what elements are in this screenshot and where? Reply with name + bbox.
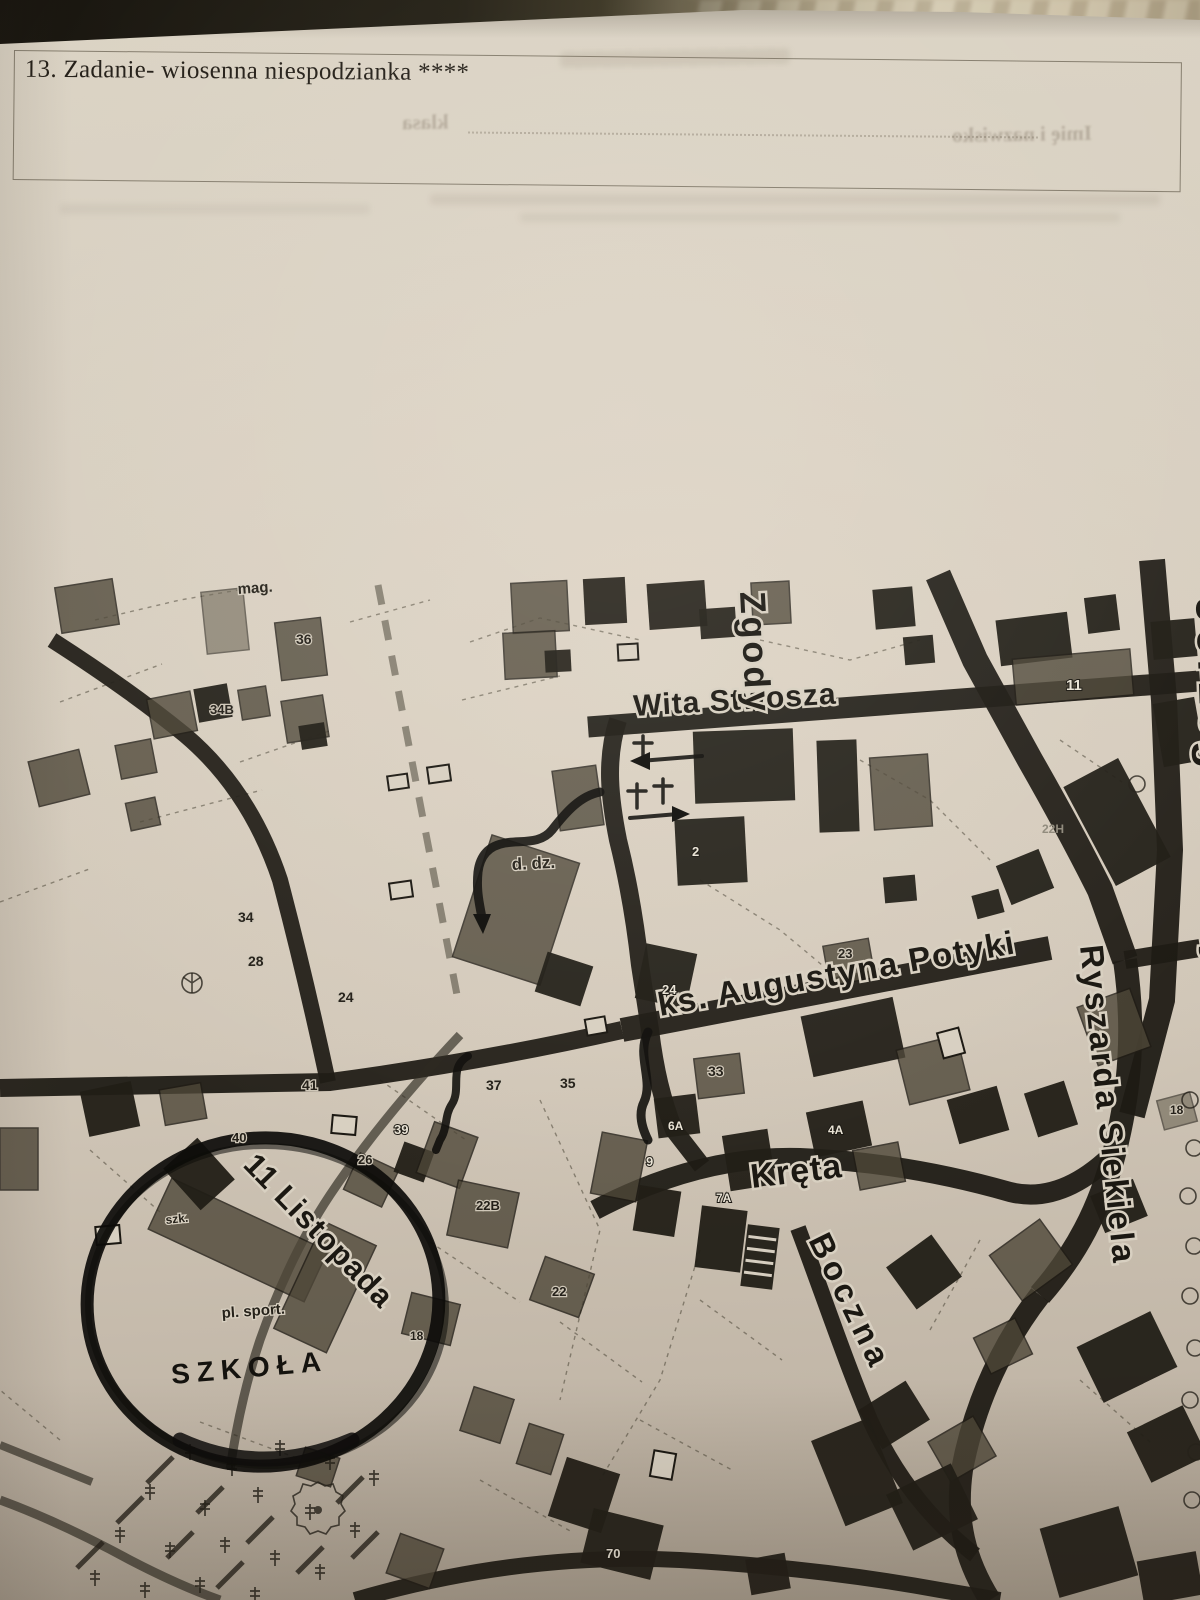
building-number: 34 [238,909,254,925]
church-cross-marks [628,736,672,808]
building-number: 23 [838,946,852,961]
building-number: 9 [646,1154,653,1169]
city-map: Wita StwoszaZgodyJerzego Drazyks. August… [0,0,1200,1600]
building-number: 37 [486,1077,502,1093]
building-number: 34B [210,702,234,717]
building-number: 28 [248,953,264,969]
building-number: 39 [394,1122,408,1137]
place-label-d-dz: d. dz. [511,853,555,874]
place-label-pl-sport: pl. sport. [221,1301,285,1322]
building-number: 40 [232,1130,246,1145]
building-number: 2 [692,844,699,859]
building-number: 24 [338,989,354,1005]
building-number: 22B [476,1198,500,1213]
street-label-zgody: Zgody [732,590,779,715]
building-number: 18 [410,1329,424,1343]
building-number: 24 [662,982,677,997]
building-number: 6A [668,1119,684,1133]
arrow-left [630,752,702,770]
road-sign-symbol [182,973,202,993]
building-number: 41 [302,1077,318,1093]
building-number: 11 [1066,677,1082,694]
building-number: 35 [560,1075,576,1091]
place-label-mag: mag. [237,579,273,598]
building-number: 70 [606,1546,620,1561]
building-number: 18 [1170,1103,1184,1117]
building-number: 22 [552,1284,566,1299]
worksheet-paper: 13. Zadanie- wiosenna niespodzianka ****… [0,0,1200,1600]
building-number: 7A [716,1191,732,1205]
ladder-building [740,1224,779,1289]
building-number: 4A [828,1123,844,1137]
street-label-jerzego-drazy: Jerzego Drazy [1186,597,1200,976]
building-number: 22H [1042,822,1064,836]
monument-symbol [291,1482,345,1534]
photo-of-worksheet: 13. Zadanie- wiosenna niespodzianka ****… [0,0,1200,1600]
building-number: 26 [358,1152,372,1167]
building-number: 36 [296,631,312,647]
route-squiggle-b [641,1032,648,1140]
building-number: 33 [708,1063,724,1079]
place-label-szk: szk. [165,1211,189,1227]
